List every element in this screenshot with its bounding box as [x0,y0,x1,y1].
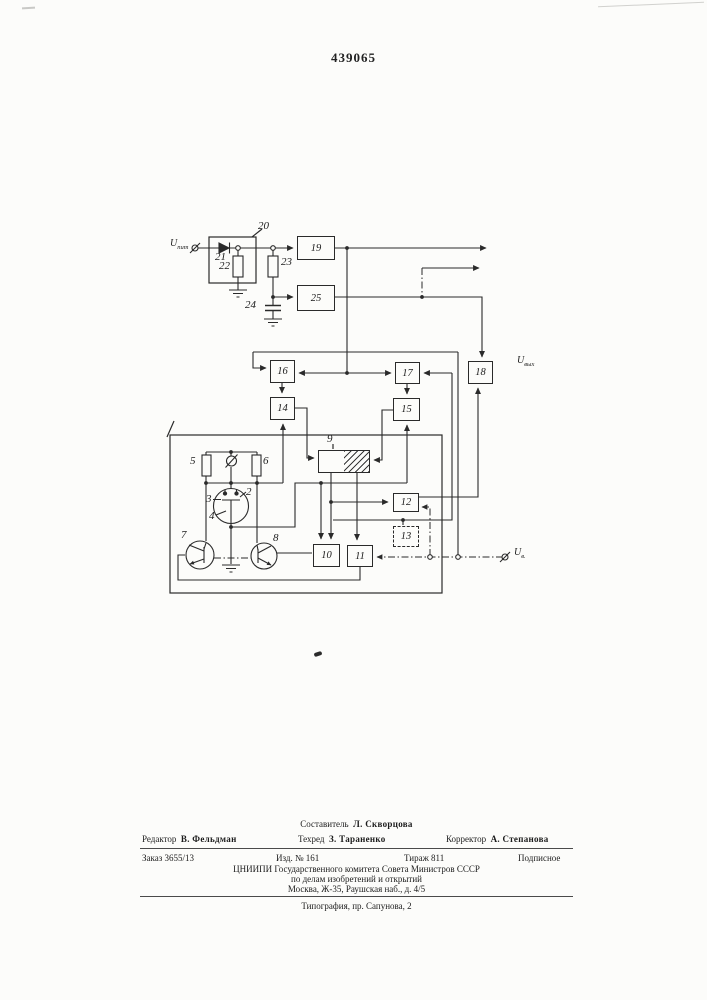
hatched-half [344,451,369,472]
part-label-5: 5 [190,456,196,467]
part-label-9: 9 [327,434,333,445]
block-9 [318,450,370,473]
block-11: 11 [347,545,373,567]
footer-rule-top [140,848,573,849]
part-label-8: 8 [273,533,279,544]
org-line-3: Москва, Ж-35, Раушская наб., д. 4/5 [140,884,573,894]
resistor-22-symbol [233,256,243,277]
tube-symbol [213,489,249,524]
corrector-role: Корректор [446,834,486,844]
part-label-7: 7 [181,530,187,541]
potentiometer-symbol [226,455,238,468]
part-label-3: 3 [206,494,212,505]
editor-name: В. Фельдман [181,834,237,844]
block-12: 12 [393,493,419,512]
schematic-linework [0,0,707,1000]
output-voltage-label: Uвых [517,356,534,369]
block-16: 16 [270,360,295,383]
techred-role: Техред [298,834,325,844]
order-number: Заказ 3655/13 [142,853,194,863]
input-terminal [190,243,200,253]
components [186,243,510,573]
control-voltage-label: Uв. [514,548,526,561]
org-line-1: ЦНИИПИ Государственного комитета Совета … [140,864,573,874]
composer-role: Составитель [300,819,348,829]
block-25: 25 [297,285,335,311]
block-10: 10 [313,544,340,567]
block-15: 15 [393,398,420,421]
footer-rule-bottom [140,896,573,897]
subscription-note: Подписное [518,853,560,863]
composer-line: Составитель Л. Скворцова [140,819,573,829]
block-14: 14 [270,397,295,420]
input-voltage-label: Uпит [170,239,188,252]
printing-house-line: Типография, пр. Сапунова, 2 [140,901,573,911]
corrector-name: А. Степанова [491,834,549,844]
org-line-2: по делам изобретений и открытий [140,874,573,884]
control-terminal [500,552,510,562]
transistor-7-symbol [186,541,214,569]
part-label-4: 4 [209,511,215,522]
techred-name: З. Тараненко [329,834,386,844]
block-19: 19 [297,236,335,260]
part-label-20: 20 [258,221,269,232]
editor-role: Редактор [142,834,176,844]
part-label-23: 23 [281,257,292,268]
block-17: 17 [395,362,420,384]
editor-line: Редактор В. Фельдман [142,834,237,844]
input-voltage-sub: пит [177,244,188,251]
transistor-8-symbol [251,543,277,569]
part-label-24: 24 [245,300,256,311]
corrector-line: Корректор А. Степанова [446,834,549,844]
resistor-23-symbol [268,256,278,277]
part-label-6: 6 [263,456,269,467]
part-label-2: 2 [246,487,252,498]
issue-number: Изд. № 161 [276,853,319,863]
control-voltage-sub: в. [521,553,525,560]
resistor-5-symbol [202,455,211,476]
composer-name: Л. Скворцова [353,819,413,829]
capacitor-24-symbol [265,306,281,311]
resistor-6-symbol [252,455,261,476]
block-13: 13 [393,526,419,547]
part-label-22: 22 [219,261,230,272]
print-run: Тираж 811 [404,853,444,863]
output-voltage-sub: вых [524,361,534,368]
patent-page: 439065 [0,0,707,1000]
block-18: 18 [468,361,493,384]
techred-line: Техред З. Тараненко [298,834,386,844]
